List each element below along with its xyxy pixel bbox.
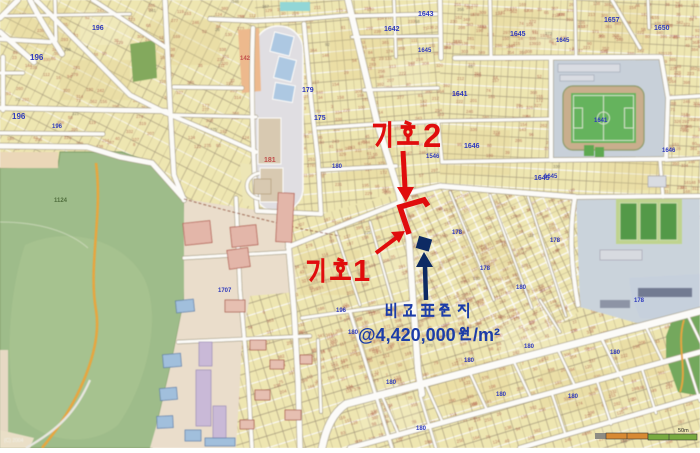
svg-text:1: 1 xyxy=(353,253,370,288)
svg-text:2: 2 xyxy=(423,117,441,154)
svg-text:@4,420,000: @4,420,000 xyxy=(358,325,456,345)
svg-text:/m²: /m² xyxy=(473,325,500,345)
